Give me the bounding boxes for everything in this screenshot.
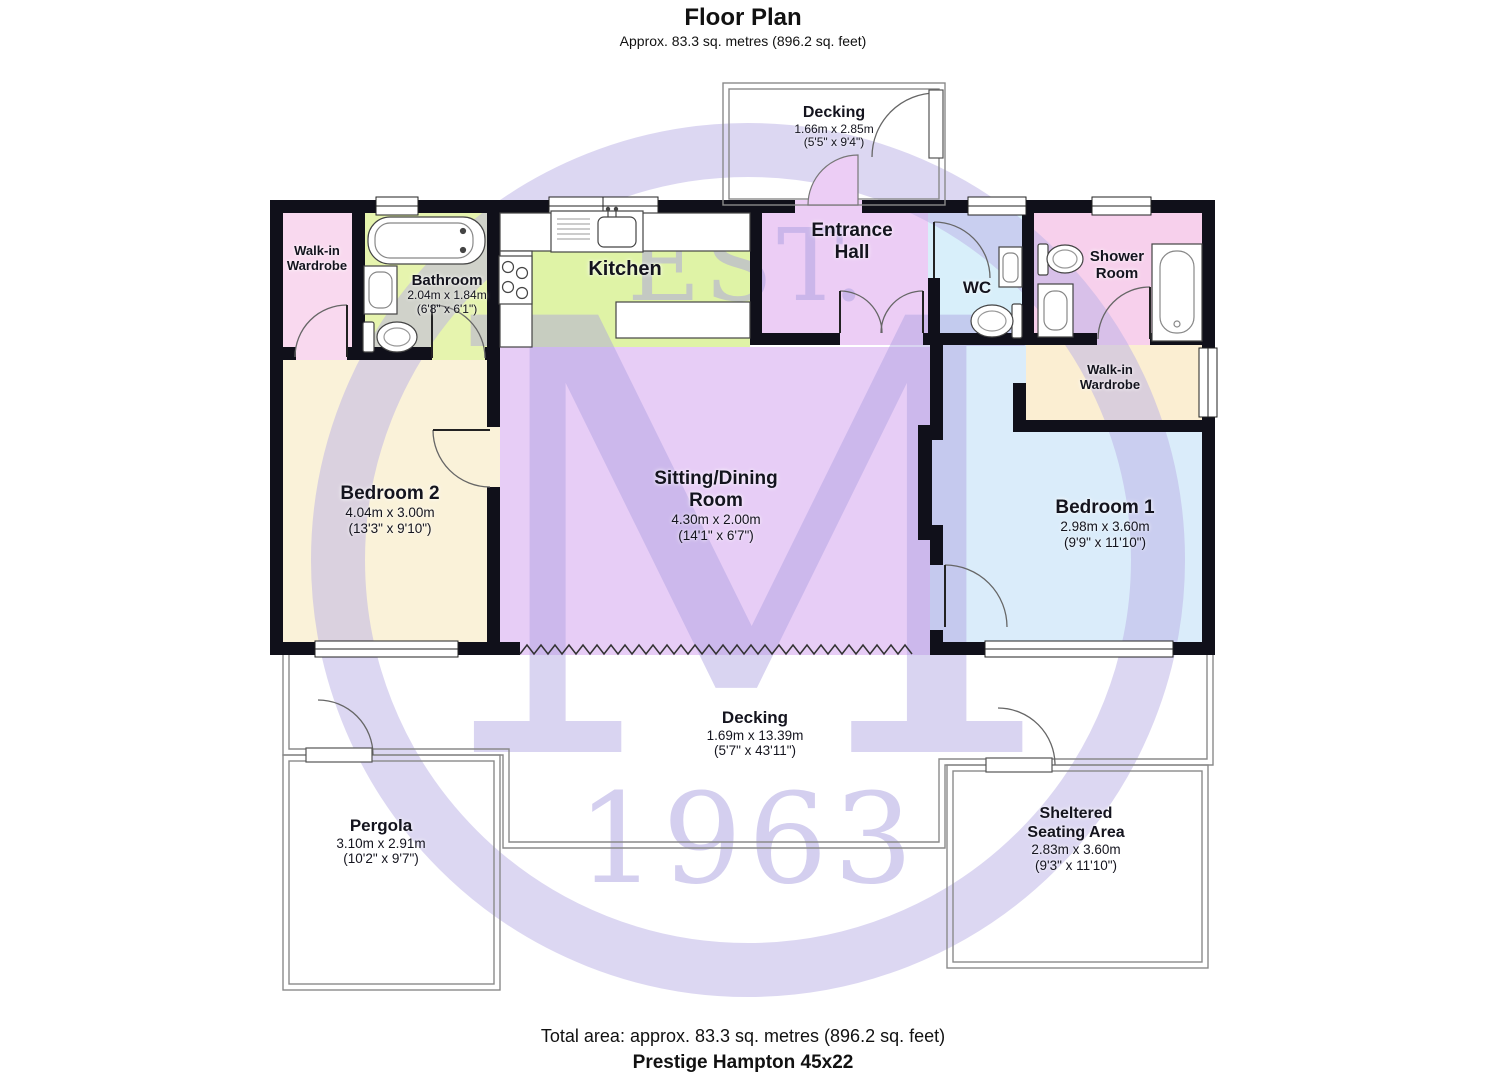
pergola-door-leaf <box>306 748 372 762</box>
room-label-decking-bottom: Decking 1.69m x 13.39m (5'7" x 43'11") <box>655 708 855 759</box>
room-label-bedroom2: Bedroom 2 4.04m x 3.00m (13'3" x 9'10") <box>300 483 480 536</box>
room-label-pergola: Pergola 3.10m x 2.91m (10'2" x 9'7") <box>291 816 471 867</box>
decking-top-door-leaf <box>929 90 943 158</box>
room-label-bathroom: Bathroom 2.04m x 1.84m (6'8" x 6'1") <box>380 272 515 317</box>
room-label-wc: WC <box>947 278 1007 298</box>
model-name: Prestige Hampton 45x22 <box>633 1052 854 1074</box>
total-area-text: Total area: approx. 83.3 sq. metres (896… <box>541 1026 945 1047</box>
sheltered-door-leaf <box>986 758 1052 772</box>
room-label-shower-room: Shower Room <box>1072 248 1162 283</box>
wc-toilet <box>971 305 1013 337</box>
bathroom-toilet <box>363 322 374 352</box>
room-label-sitting-dining: Sitting/Dining Room 4.30m x 2.00m (14'1"… <box>641 468 791 543</box>
kitchen-breakfast-bar <box>616 302 750 338</box>
room-label-entrance-hall: Entrance Hall <box>797 220 907 264</box>
room-label-walkin-wardrobe-right: Walk-in Wardrobe <box>1065 362 1155 392</box>
shower-sink <box>1038 284 1073 337</box>
room-label-kitchen: Kitchen <box>560 258 690 281</box>
room-label-bedroom1: Bedroom 1 2.98m x 3.60m (9'9" x 11'10") <box>1015 497 1195 550</box>
room-label-decking-top: Decking 1.66m x 2.85m (5'5" x 9'4") <box>749 104 919 150</box>
floor-plan-page: Floor Plan Approx. 83.3 sq. metres (896.… <box>0 0 1486 1080</box>
room-label-walkin-wardrobe-left: Walk-in Wardrobe <box>277 243 357 273</box>
room-label-sheltered-seating: Sheltered Seating Area 2.83m x 3.60m (9'… <box>1024 805 1129 873</box>
watermark-year: 1963 <box>577 767 919 912</box>
